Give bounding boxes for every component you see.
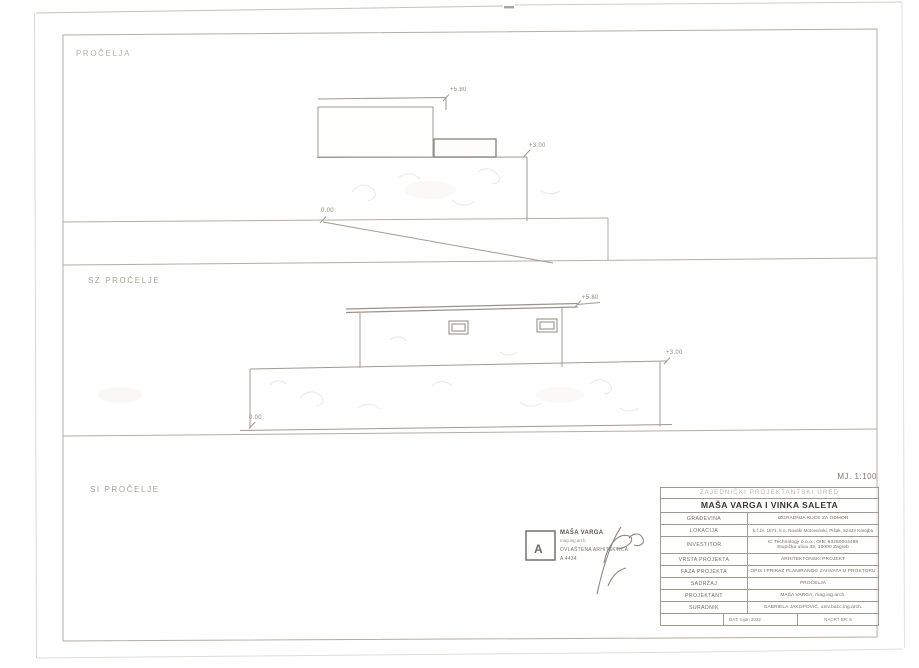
titleblock-architects: MAŠA VARGA I VINKA SALETA <box>661 498 878 512</box>
terrain-slope-line <box>323 222 553 263</box>
titleblock-office: ZAJEDNIČKI PROJEKTANTSKI URED <box>661 488 878 498</box>
stamp-architect-name: MAŠA VARGA <box>560 530 603 536</box>
elevation-1-drawing <box>317 95 553 264</box>
titleblock-footer-row: DAT: rujan 2022. NACRT BR: 6 <box>661 613 878 625</box>
level-marker-e1-mid: +3.00 <box>529 143 546 149</box>
row-value: GABRIELA JAKOPOVIĆ, univ.bacc.ing.arch. <box>748 602 878 613</box>
row-label: INVESTITOR <box>661 537 748 553</box>
section-ground-line-1 <box>63 218 608 222</box>
row-label: FAZA PROJEKTA <box>661 566 748 577</box>
level-marker-e1-ground: 0.00 <box>321 208 334 214</box>
row-label: SADRŽAJ <box>661 578 748 589</box>
row-label: LOKACIJA <box>661 525 748 536</box>
scale-label: MJ. 1:100 <box>797 472 877 481</box>
row-label: VRSTA PROJEKTA <box>661 554 748 565</box>
level-marker-e2-top: +5.80 <box>582 295 599 301</box>
building-annex-volume <box>434 139 496 157</box>
stamp-license-text: OVLAŠTENA ARHITEKTICA <box>560 547 628 553</box>
dimension-line <box>318 98 446 100</box>
row-value: OPIS I PRIKAZ PLANIRANOG ZAHVATA U PROST… <box>748 566 878 577</box>
titleblock-row-projektant: PROJEKTANT MAŠA VARGA, mag.ing.arch. <box>661 589 878 601</box>
stamp-license-number: A 4434 <box>560 556 577 562</box>
footer-spacer-cell <box>661 614 724 625</box>
window-openings <box>449 319 557 334</box>
section-label-si-procelje: SI PROČELJE <box>90 485 160 494</box>
building-main-volume <box>318 107 433 157</box>
titleblock-row-suradnik: SURADNIK GABRIELA JAKOPOVIĆ, univ.bacc.i… <box>661 601 878 613</box>
level-marker-e2-mid: +3.00 <box>666 350 683 356</box>
row-label: PROJEKTANT <box>661 590 748 601</box>
row-value: PROČELJA <box>748 578 878 589</box>
scan-texture-scribbles <box>98 169 639 411</box>
level-marker-e1-top: +5.80 <box>450 87 467 93</box>
titleblock-row-faza: FAZA PROJEKTA OPIS I PRIKAZ PLANIRANOG Z… <box>661 565 878 577</box>
ground-line <box>240 425 672 431</box>
section-divider-1 <box>63 258 877 265</box>
row-value: k.č.br. 1671, k.o. Novaki Motovunski, Pi… <box>748 525 878 536</box>
upper-ground-line <box>250 361 667 369</box>
row-value: IC Technology d.o.o., OIB: 63250004488 S… <box>748 537 878 553</box>
section-divider-2 <box>63 429 877 436</box>
title-block: ZAJEDNIČKI PROJEKTANTSKI URED MAŠA VARGA… <box>660 487 879 626</box>
date-cell: DAT: rujan 2022. <box>724 614 798 625</box>
stamp-architect-title: mag.ing.arch. <box>560 538 587 543</box>
titleblock-row-vrsta: VRSTA PROJEKTA ARHITEKTONSKI PROJEKT <box>661 553 878 565</box>
section-label-sz-procelje: SZ PROČELJE <box>88 276 160 285</box>
sheet-number-cell: NACRT BR: 6 <box>798 614 878 625</box>
titleblock-row-gradevina: GRAĐEVINA IZGRADNJA KUĆE ZA ODMOR <box>661 512 878 524</box>
titleblock-row-lokacija: LOKACIJA k.č.br. 1671, k.o. Novaki Motov… <box>661 524 878 536</box>
scan-registration-mark <box>504 6 514 8</box>
investor-line-2: Stupička ulica 33, 10000 Zagreb <box>777 545 849 550</box>
titleblock-row-sadrzaj: SADRŽAJ PROČELJA <box>661 577 878 589</box>
section-label-procelja: PROČELJA <box>76 49 131 58</box>
row-label: SURADNIK <box>661 602 748 613</box>
signature-scribble <box>597 527 643 594</box>
level-tick <box>524 150 530 157</box>
scanned-drawing-page: { "sheet": { "scale_label": "MJ. 1:100",… <box>0 0 919 668</box>
row-value: ARHITEKTONSKI PROJEKT <box>748 554 878 565</box>
row-value: IZGRADNJA KUĆE ZA ODMOR <box>748 513 878 524</box>
level-marker-e2-ground: 0.00 <box>249 415 262 421</box>
row-label: GRAĐEVINA <box>661 513 748 524</box>
stamp-monogram: A <box>534 542 543 556</box>
elevation-2-drawing <box>240 301 672 431</box>
row-value: MAŠA VARGA, mag.ing.arch. <box>748 590 878 601</box>
titleblock-row-investitor: INVESTITOR IC Technology d.o.o., OIB: 63… <box>661 536 878 553</box>
